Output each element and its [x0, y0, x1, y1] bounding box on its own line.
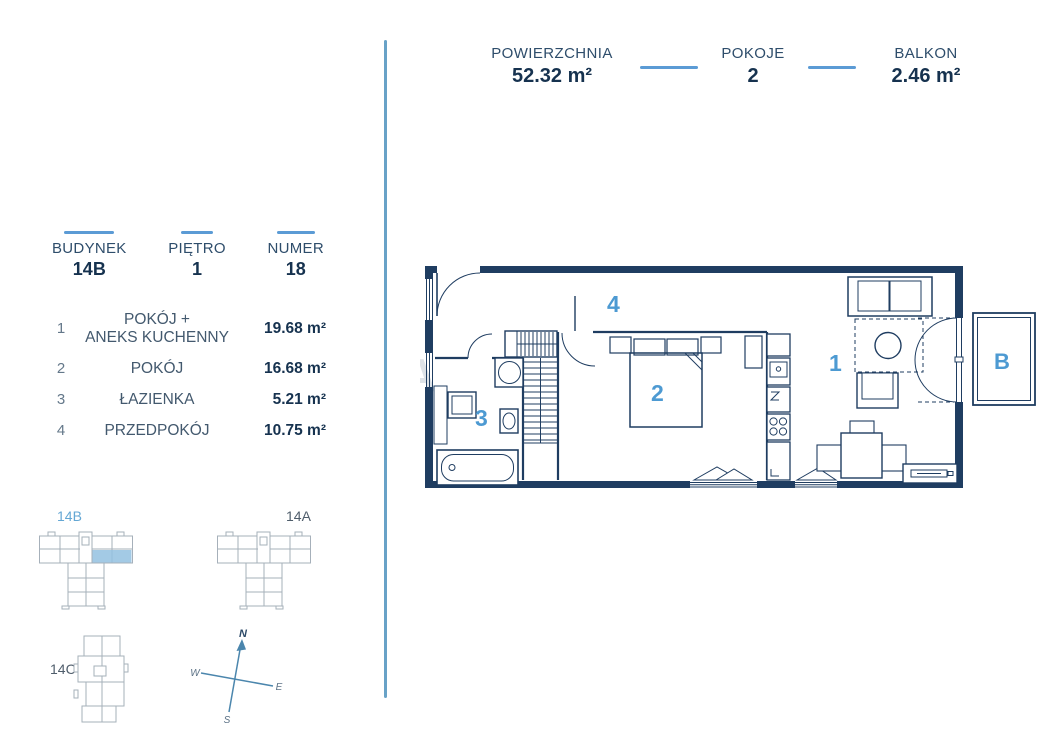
- unit-info-number: NUMER 18: [267, 231, 324, 280]
- kitchen-counter: [767, 442, 790, 480]
- stat-area-value: 52.32 m²: [472, 65, 632, 88]
- stat-balcony-label: BALKON: [856, 45, 996, 62]
- floor-label: PIĘTRO: [168, 240, 226, 257]
- unit-info-floor: PIĘTRO 1: [168, 231, 226, 280]
- room-row-1: 1 POKÓJ + ANEKS KUCHENNY 19.68 m²: [50, 311, 326, 347]
- stat-separator: [808, 66, 856, 69]
- site-map-14a[interactable]: [216, 523, 312, 611]
- floor-value: 1: [168, 259, 226, 280]
- site-map-14c[interactable]: [72, 634, 132, 726]
- kitchen-annex: [767, 334, 790, 480]
- window-opening-markers: [694, 467, 836, 480]
- compass-s-label: S: [224, 715, 231, 726]
- stat-area-label: POWIERZCHNIA: [472, 45, 632, 62]
- room-label-bedroom: 2: [651, 380, 664, 406]
- stat-area: POWIERZCHNIA 52.32 m²: [472, 45, 632, 88]
- unit-info: BUDYNEK 14B PIĘTRO 1 NUMER 18: [52, 231, 324, 280]
- room-area: 5.21 m²: [242, 391, 326, 409]
- entry-door: [437, 273, 480, 316]
- room-row-4: 4 PRZEDPOKÓJ 10.75 m²: [50, 422, 326, 440]
- highlighted-unit: [93, 550, 132, 563]
- vertical-divider: [384, 40, 387, 698]
- accent-bar: [277, 231, 315, 234]
- room-number: 3: [50, 391, 72, 408]
- room-label-hall: 4: [607, 291, 620, 317]
- room-row-3: 3 ŁAZIENKA 5.21 m²: [50, 391, 326, 409]
- interior-door-arcs: [468, 333, 595, 366]
- wardrobe: [745, 336, 762, 368]
- building-14c-outline: [72, 634, 132, 726]
- bedroom-furniture: [610, 336, 762, 427]
- balcony-label: B: [994, 349, 1010, 374]
- dining-table: [817, 421, 906, 478]
- floor-plan: A: [420, 255, 1063, 500]
- fridge: [767, 387, 790, 412]
- room-label-bathroom: 3: [475, 405, 488, 431]
- site-map-14b[interactable]: [38, 523, 134, 611]
- room-label-living: 1: [829, 350, 842, 376]
- room-row-2: 2 POKÓJ 16.68 m²: [50, 360, 326, 378]
- bed: [630, 353, 702, 427]
- stat-rooms: POKOJE 2: [698, 45, 808, 88]
- bathroom-sink: [495, 358, 523, 387]
- building-14b-outline: [38, 523, 134, 611]
- unit-info-building: BUDYNEK 14B: [52, 231, 127, 280]
- compass-rose-icon: N W E S: [185, 628, 285, 728]
- toilet: [500, 409, 518, 433]
- living-room-furniture: [817, 277, 957, 483]
- room-area: 10.75 m²: [242, 422, 326, 440]
- kitchen-cabinet: [767, 334, 790, 356]
- building-14a-outline: [216, 523, 312, 611]
- accent-bar: [181, 231, 213, 234]
- north-arrow-icon: [237, 639, 247, 651]
- stat-separator: [640, 66, 698, 69]
- closet: [505, 331, 557, 357]
- bathroom-cabinet: [434, 386, 447, 444]
- site-map-14b-label: 14B: [57, 508, 82, 524]
- room-list: 1 POKÓJ + ANEKS KUCHENNY 19.68 m² 2 POKÓ…: [50, 311, 326, 453]
- building-value: 14B: [52, 259, 127, 280]
- room-number: 4: [50, 422, 72, 439]
- washing-machine: [448, 392, 476, 418]
- room-name: POKÓJ + ANEKS KUCHENNY: [78, 311, 236, 347]
- bathtub: [437, 450, 518, 485]
- number-value: 18: [267, 259, 324, 280]
- stat-balcony: BALKON 2.46 m²: [856, 45, 996, 88]
- room-name: POKÓJ: [78, 360, 236, 378]
- room-number: 1: [50, 320, 72, 337]
- sofa: [848, 277, 932, 316]
- stat-balcony-value: 2.46 m²: [856, 65, 996, 88]
- room-name: ŁAZIENKA: [78, 391, 236, 409]
- floor-plan-page: POWIERZCHNIA 52.32 m² POKOJE 2 BALKON 2.…: [0, 0, 1063, 743]
- room-area: 16.68 m²: [242, 360, 326, 378]
- staircase: [523, 358, 558, 443]
- compass-w-label: W: [190, 668, 201, 679]
- stat-rooms-value: 2: [698, 65, 808, 88]
- kitchen-sink: [767, 358, 790, 385]
- number-label: NUMER: [267, 240, 324, 257]
- stove: [767, 414, 790, 440]
- room-area: 19.68 m²: [242, 320, 326, 338]
- compass-n-label: N: [239, 628, 248, 640]
- room-number: 2: [50, 360, 72, 377]
- coffee-table: [875, 333, 901, 359]
- armchair: [857, 373, 898, 408]
- compass-e-label: E: [276, 682, 283, 693]
- balcony-doors: [915, 318, 957, 402]
- compass: N W E S: [185, 628, 285, 728]
- room-name: PRZEDPOKÓJ: [78, 422, 236, 440]
- building-label: BUDYNEK: [52, 240, 127, 257]
- tv-cabinet: [903, 464, 957, 483]
- accent-bar: [64, 231, 114, 234]
- stat-rooms-label: POKOJE: [698, 45, 808, 62]
- site-map-14a-label: 14A: [286, 508, 311, 524]
